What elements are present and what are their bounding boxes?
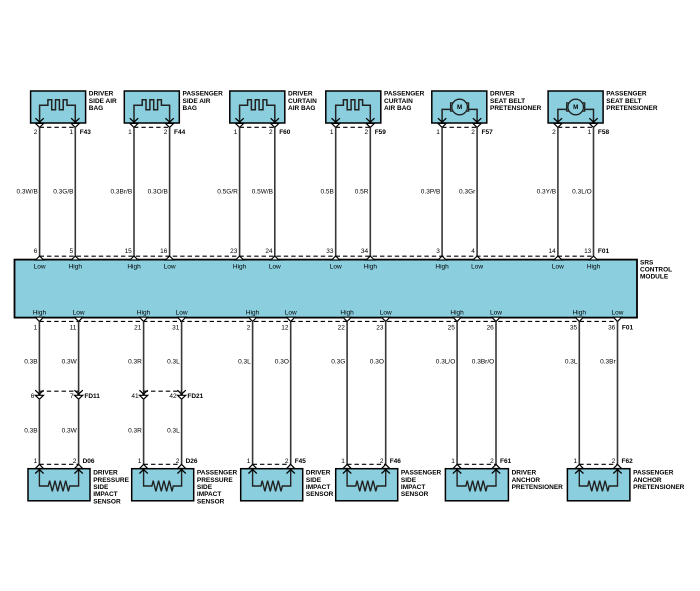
svg-text:M: M xyxy=(573,104,578,111)
svg-text:0.3Br/O: 0.3Br/O xyxy=(472,358,494,365)
svg-text:0.3R: 0.3R xyxy=(128,358,142,365)
svg-text:0.3Gr: 0.3Gr xyxy=(459,189,476,196)
svg-text:Low: Low xyxy=(490,309,502,316)
svg-text:High: High xyxy=(69,263,83,270)
svg-text:PRETENSIONER: PRETENSIONER xyxy=(633,484,685,491)
svg-text:F59: F59 xyxy=(375,129,387,136)
svg-text:0.3B: 0.3B xyxy=(24,427,37,434)
svg-text:PASSENGER: PASSENGER xyxy=(401,470,442,477)
svg-text:1: 1 xyxy=(138,458,142,465)
svg-text:F57: F57 xyxy=(482,129,494,136)
svg-text:0.3P/B: 0.3P/B xyxy=(421,189,441,196)
svg-text:1: 1 xyxy=(247,458,251,465)
svg-text:AIR BAG: AIR BAG xyxy=(288,105,315,112)
svg-text:SIDE AIR: SIDE AIR xyxy=(89,98,117,105)
svg-text:SENSOR: SENSOR xyxy=(401,491,429,498)
svg-text:15: 15 xyxy=(125,248,133,255)
svg-text:FD11: FD11 xyxy=(84,393,100,400)
svg-text:High: High xyxy=(435,263,449,270)
svg-text:1: 1 xyxy=(234,129,238,136)
svg-text:SIDE: SIDE xyxy=(401,477,417,484)
svg-text:1: 1 xyxy=(128,129,132,136)
svg-text:1: 1 xyxy=(34,325,38,332)
svg-text:2: 2 xyxy=(490,458,494,465)
svg-text:F61: F61 xyxy=(500,458,512,465)
svg-text:2: 2 xyxy=(73,458,77,465)
svg-text:1: 1 xyxy=(588,129,592,136)
svg-text:SEAT BELT: SEAT BELT xyxy=(490,98,525,105)
svg-text:21: 21 xyxy=(134,325,142,332)
svg-text:F46: F46 xyxy=(390,458,402,465)
svg-text:0.3O: 0.3O xyxy=(275,358,289,365)
svg-text:PASSENGER: PASSENGER xyxy=(633,470,674,477)
svg-text:42: 42 xyxy=(169,393,177,400)
svg-text:SIDE: SIDE xyxy=(197,484,213,491)
svg-text:PRESSURE: PRESSURE xyxy=(197,477,233,484)
svg-text:11: 11 xyxy=(70,325,77,332)
svg-text:PRETENSIONER: PRETENSIONER xyxy=(512,484,564,491)
svg-text:IMPACT: IMPACT xyxy=(93,491,117,498)
svg-text:BAG: BAG xyxy=(183,105,197,112)
svg-text:BAG: BAG xyxy=(89,105,103,112)
svg-text:AIR BAG: AIR BAG xyxy=(384,105,411,112)
svg-text:F45: F45 xyxy=(295,458,307,465)
svg-text:0.3Br: 0.3Br xyxy=(600,358,616,365)
svg-text:36: 36 xyxy=(608,325,616,332)
svg-text:0.3G/B: 0.3G/B xyxy=(53,189,73,196)
svg-text:23: 23 xyxy=(376,325,384,332)
svg-text:0.3W: 0.3W xyxy=(62,358,78,365)
svg-text:2: 2 xyxy=(34,129,38,136)
svg-text:DRIVER: DRIVER xyxy=(288,91,313,98)
svg-text:2: 2 xyxy=(285,458,289,465)
svg-text:0.3L: 0.3L xyxy=(167,427,180,434)
svg-text:SIDE AIR: SIDE AIR xyxy=(183,98,211,105)
svg-text:1: 1 xyxy=(451,458,455,465)
svg-text:24: 24 xyxy=(265,248,273,255)
svg-text:IMPACT: IMPACT xyxy=(401,484,425,491)
svg-text:SIDE: SIDE xyxy=(93,484,109,491)
svg-text:13: 13 xyxy=(584,248,592,255)
svg-text:1: 1 xyxy=(330,129,334,136)
svg-text:F01: F01 xyxy=(598,248,610,255)
svg-text:0.3L: 0.3L xyxy=(167,358,180,365)
svg-text:CURTAIN: CURTAIN xyxy=(384,98,413,105)
svg-text:0.3W/B: 0.3W/B xyxy=(16,189,37,196)
svg-text:SENSOR: SENSOR xyxy=(93,498,121,505)
svg-text:1: 1 xyxy=(573,458,577,465)
svg-text:0.5R: 0.5R xyxy=(355,189,369,196)
svg-text:High: High xyxy=(450,309,464,316)
svg-text:2: 2 xyxy=(380,458,384,465)
svg-text:PASSENGER: PASSENGER xyxy=(183,91,224,98)
svg-text:2: 2 xyxy=(176,458,180,465)
svg-text:High: High xyxy=(137,309,151,316)
svg-text:6: 6 xyxy=(31,393,35,400)
svg-text:SIDE: SIDE xyxy=(306,477,322,484)
svg-text:Low: Low xyxy=(164,263,176,270)
svg-text:D06: D06 xyxy=(83,458,95,465)
svg-text:DRIVER: DRIVER xyxy=(89,91,114,98)
svg-text:1: 1 xyxy=(69,129,73,136)
svg-text:35: 35 xyxy=(570,325,578,332)
svg-text:F60: F60 xyxy=(279,129,291,136)
svg-text:0.3O/B: 0.3O/B xyxy=(148,189,168,196)
svg-text:F01: F01 xyxy=(622,325,634,332)
svg-text:F58: F58 xyxy=(598,129,610,136)
svg-text:0.3G: 0.3G xyxy=(331,358,345,365)
svg-text:Low: Low xyxy=(285,309,297,316)
svg-text:M: M xyxy=(457,104,462,111)
svg-text:Low: Low xyxy=(176,309,188,316)
svg-text:12: 12 xyxy=(281,325,289,332)
svg-text:CONTROL: CONTROL xyxy=(640,267,672,274)
svg-text:SEAT BELT: SEAT BELT xyxy=(606,98,641,105)
svg-text:PASSENGER: PASSENGER xyxy=(384,91,425,98)
svg-text:IMPACT: IMPACT xyxy=(197,491,221,498)
svg-text:0.5G/R: 0.5G/R xyxy=(217,189,238,196)
svg-text:0.5B: 0.5B xyxy=(321,189,334,196)
svg-text:0.3L/O: 0.3L/O xyxy=(572,189,592,196)
svg-text:ANCHOR: ANCHOR xyxy=(633,477,662,484)
svg-text:FD21: FD21 xyxy=(187,393,203,400)
svg-text:0.3L: 0.3L xyxy=(238,358,251,365)
svg-text:D26: D26 xyxy=(186,458,198,465)
svg-text:Low: Low xyxy=(380,309,392,316)
svg-text:31: 31 xyxy=(172,325,180,332)
svg-text:26: 26 xyxy=(487,325,495,332)
svg-text:41: 41 xyxy=(131,393,139,400)
svg-text:DRIVER: DRIVER xyxy=(306,470,331,477)
svg-text:3: 3 xyxy=(436,248,440,255)
svg-text:2: 2 xyxy=(247,325,251,332)
svg-text:23: 23 xyxy=(230,248,238,255)
svg-text:SENSOR: SENSOR xyxy=(306,491,334,498)
svg-text:16: 16 xyxy=(160,248,168,255)
svg-text:High: High xyxy=(246,309,260,316)
svg-text:Low: Low xyxy=(269,263,281,270)
svg-text:22: 22 xyxy=(338,325,346,332)
svg-text:0.3Br/B: 0.3Br/B xyxy=(111,189,133,196)
svg-text:PRETENSIONER: PRETENSIONER xyxy=(490,105,542,112)
svg-text:1: 1 xyxy=(341,458,345,465)
svg-text:High: High xyxy=(33,309,47,316)
svg-text:MODULE: MODULE xyxy=(640,274,669,281)
svg-text:High: High xyxy=(127,263,141,270)
svg-text:2: 2 xyxy=(269,129,273,136)
svg-text:Low: Low xyxy=(330,263,342,270)
svg-text:0.3B: 0.3B xyxy=(24,358,37,365)
svg-text:25: 25 xyxy=(448,325,456,332)
svg-text:PRETENSIONER: PRETENSIONER xyxy=(606,105,658,112)
svg-text:High: High xyxy=(364,263,378,270)
svg-text:Low: Low xyxy=(612,309,624,316)
svg-text:Low: Low xyxy=(34,263,46,270)
svg-text:0.3Y/B: 0.3Y/B xyxy=(537,189,557,196)
svg-text:33: 33 xyxy=(326,248,334,255)
svg-text:0.3O: 0.3O xyxy=(370,358,384,365)
svg-text:High: High xyxy=(587,263,601,270)
svg-text:High: High xyxy=(340,309,354,316)
svg-text:2: 2 xyxy=(552,129,556,136)
svg-text:F44: F44 xyxy=(174,129,186,136)
svg-text:Low: Low xyxy=(471,263,483,270)
svg-text:34: 34 xyxy=(361,248,369,255)
svg-text:High: High xyxy=(573,309,587,316)
svg-text:DRIVER: DRIVER xyxy=(93,470,118,477)
svg-text:ANCHOR: ANCHOR xyxy=(512,477,541,484)
svg-text:2: 2 xyxy=(612,458,616,465)
svg-text:2: 2 xyxy=(364,129,368,136)
svg-text:SRS: SRS xyxy=(640,259,654,266)
svg-text:SENSOR: SENSOR xyxy=(197,498,225,505)
svg-text:0.3L/O: 0.3L/O xyxy=(436,358,456,365)
svg-text:4: 4 xyxy=(471,248,475,255)
svg-text:PASSENGER: PASSENGER xyxy=(197,470,238,477)
svg-text:CURTAIN: CURTAIN xyxy=(288,98,317,105)
svg-text:DRIVER: DRIVER xyxy=(512,470,537,477)
svg-text:1: 1 xyxy=(34,458,38,465)
svg-text:0.3R: 0.3R xyxy=(128,427,142,434)
svg-text:F62: F62 xyxy=(622,458,634,465)
svg-text:PASSENGER: PASSENGER xyxy=(606,91,647,98)
svg-text:6: 6 xyxy=(34,248,38,255)
svg-text:14: 14 xyxy=(548,248,556,255)
svg-text:2: 2 xyxy=(471,129,475,136)
svg-text:DRIVER: DRIVER xyxy=(490,91,515,98)
svg-text:High: High xyxy=(233,263,247,270)
svg-text:PRESSURE: PRESSURE xyxy=(93,477,129,484)
svg-text:2: 2 xyxy=(164,129,168,136)
svg-text:1: 1 xyxy=(436,129,440,136)
svg-text:Low: Low xyxy=(73,309,85,316)
svg-text:F43: F43 xyxy=(80,129,92,136)
svg-text:0.3W: 0.3W xyxy=(62,427,78,434)
svg-text:Low: Low xyxy=(552,263,564,270)
svg-text:IMPACT: IMPACT xyxy=(306,484,330,491)
svg-text:5: 5 xyxy=(69,248,73,255)
svg-text:7: 7 xyxy=(70,393,74,400)
svg-text:0.5W/B: 0.5W/B xyxy=(252,189,273,196)
svg-text:0.3L: 0.3L xyxy=(565,358,578,365)
